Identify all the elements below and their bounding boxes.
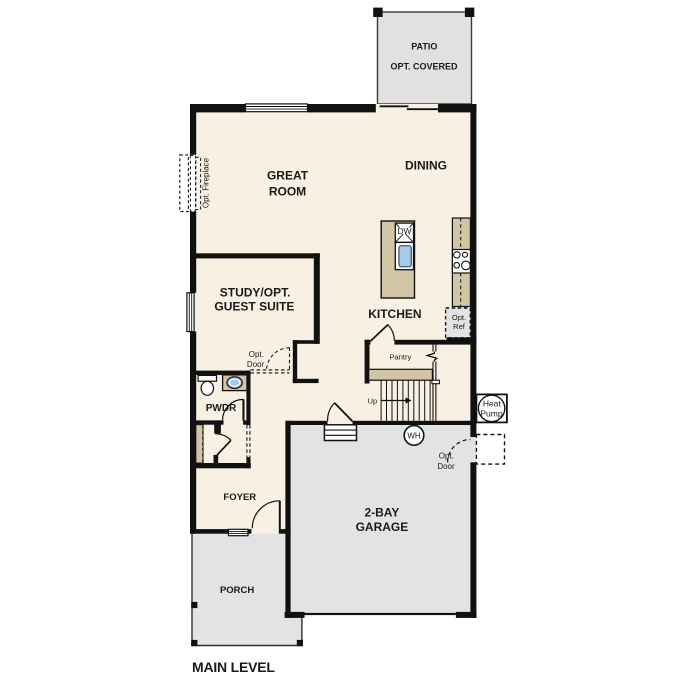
svg-text:Opt.: Opt. [249, 350, 264, 359]
svg-text:PWDR: PWDR [206, 403, 237, 414]
svg-text:Ref: Ref [453, 322, 466, 331]
svg-text:Heat: Heat [483, 398, 502, 408]
svg-text:GUEST SUITE: GUEST SUITE [214, 300, 294, 314]
svg-text:STUDY/OPT.: STUDY/OPT. [220, 286, 291, 300]
svg-text:MAIN LEVEL: MAIN LEVEL [192, 659, 275, 675]
svg-text:2-BAY: 2-BAY [364, 506, 399, 520]
svg-text:Pantry: Pantry [390, 352, 412, 361]
svg-text:GARAGE: GARAGE [356, 520, 409, 534]
svg-text:KITCHEN: KITCHEN [368, 307, 421, 321]
svg-text:PORCH: PORCH [220, 585, 254, 596]
svg-text:Pump: Pump [480, 408, 502, 418]
svg-text:FOYER: FOYER [223, 492, 256, 503]
svg-text:GREAT: GREAT [267, 169, 309, 183]
svg-text:OPT. COVERED: OPT. COVERED [390, 61, 458, 71]
svg-text:PATIO: PATIO [411, 42, 437, 52]
svg-text:Up: Up [368, 396, 378, 405]
svg-text:Opt.: Opt. [439, 451, 454, 460]
svg-text:Door: Door [247, 360, 265, 369]
svg-text:DW: DW [397, 226, 411, 236]
svg-text:WH: WH [407, 431, 421, 440]
svg-text:Opt.: Opt. [452, 313, 466, 322]
svg-text:ROOM: ROOM [269, 184, 306, 198]
svg-text:DINING: DINING [405, 158, 447, 172]
svg-text:Opt. Fireplace: Opt. Fireplace [202, 157, 211, 208]
svg-text:Door: Door [437, 462, 455, 471]
